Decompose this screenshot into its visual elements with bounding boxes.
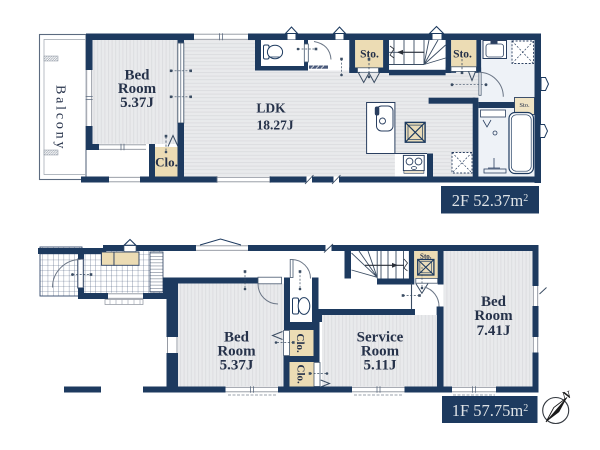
svg-text:Room: Room: [474, 308, 513, 324]
svg-text:Clo.: Clo.: [294, 334, 306, 354]
svg-text:Clo.: Clo.: [295, 365, 307, 385]
svg-text:5.37J: 5.37J: [220, 358, 254, 374]
svg-text:Sto.: Sto.: [453, 49, 472, 61]
svg-text:LDK: LDK: [256, 101, 286, 116]
svg-text:1F 57.75m2: 1F 57.75m2: [452, 401, 529, 420]
svg-text:5.37J: 5.37J: [120, 95, 154, 111]
svg-text:7.41J: 7.41J: [477, 323, 511, 339]
svg-text:Balcony: Balcony: [53, 85, 68, 151]
svg-text:18.27J: 18.27J: [256, 118, 293, 133]
svg-text:5.11J: 5.11J: [364, 358, 397, 374]
svg-text:2F 52.37m2: 2F 52.37m2: [452, 191, 529, 210]
svg-text:Clo.: Clo.: [155, 154, 178, 169]
svg-text:Sto.: Sto.: [519, 102, 530, 109]
